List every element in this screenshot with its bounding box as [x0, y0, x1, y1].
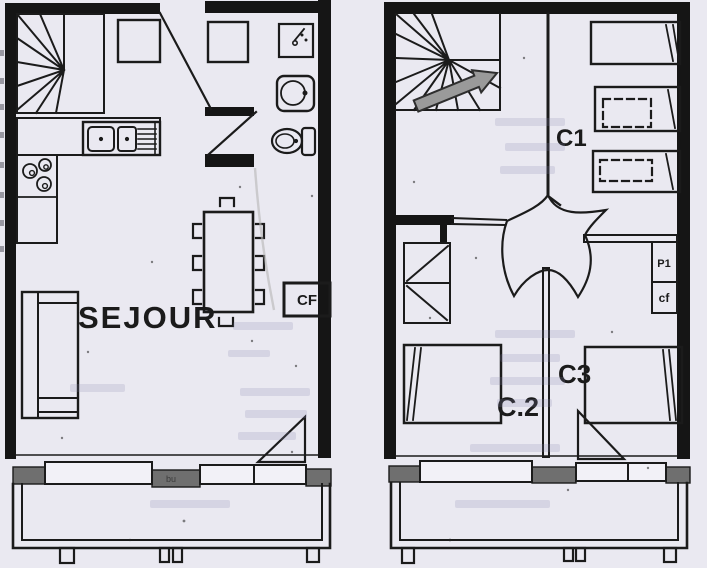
masonry-pier: [13, 467, 45, 484]
entry-closet-icon: [208, 22, 248, 62]
window-icon: [628, 463, 666, 481]
closet-cf: cf: [652, 282, 677, 313]
single-bed-icon: [585, 347, 682, 423]
window-band: [389, 456, 690, 483]
sofa-icon: [22, 292, 78, 418]
room-label-sejour: SEJOUR: [78, 300, 217, 335]
closet-p1-label: P1: [657, 258, 670, 270]
single-bed-icon: [404, 345, 501, 423]
window-icon: [576, 463, 628, 481]
window-icon: [200, 465, 254, 484]
door-swing-icon: [502, 195, 606, 297]
balcony-icon: [391, 483, 687, 563]
bunk-bed-dashed-icon: [600, 160, 652, 181]
cf-storage-label: CF: [297, 292, 317, 309]
window-icon: [45, 462, 152, 484]
right-unit-plan: C1: [384, 2, 690, 563]
room-c1: C1: [556, 22, 680, 192]
room-c3: C3: [558, 347, 682, 459]
toilet-icon: [272, 128, 315, 155]
masonry-pier: [306, 469, 331, 486]
window-band: bu: [13, 455, 331, 487]
masonry-pier: [666, 467, 690, 483]
masonry-pier: [389, 466, 420, 482]
shower-icon: [279, 24, 313, 57]
single-bed-icon: [595, 87, 680, 131]
drainboard-icon: [138, 122, 156, 155]
entry-closet-icon: [118, 20, 160, 62]
wardrobe-icon: [404, 243, 450, 323]
floor-plan-scan: CF SEJOUR: [0, 0, 707, 568]
closet-p1: P1: [652, 242, 677, 282]
bunk-bed-dashed-icon: [603, 99, 651, 127]
page-edge-marks: [0, 50, 4, 252]
single-bed-icon: [591, 22, 680, 64]
masonry-pier: [532, 467, 576, 483]
window-icon: [420, 461, 532, 482]
balcony-icon: [13, 484, 330, 563]
closet-cf-label: cf: [659, 291, 671, 305]
cooktop-burners-icon: [17, 155, 57, 243]
window-icon: [254, 465, 306, 484]
left-unit-plan: CF SEJOUR: [5, 0, 331, 563]
single-bed-icon: [593, 151, 680, 192]
walls: [384, 2, 690, 459]
balcony-pier-label: bu: [166, 474, 176, 484]
kitchen-counter: [17, 118, 160, 155]
winder-staircase-icon: [17, 14, 104, 113]
washbasin-icon: [277, 76, 314, 111]
door-swing-icon: [578, 411, 624, 459]
